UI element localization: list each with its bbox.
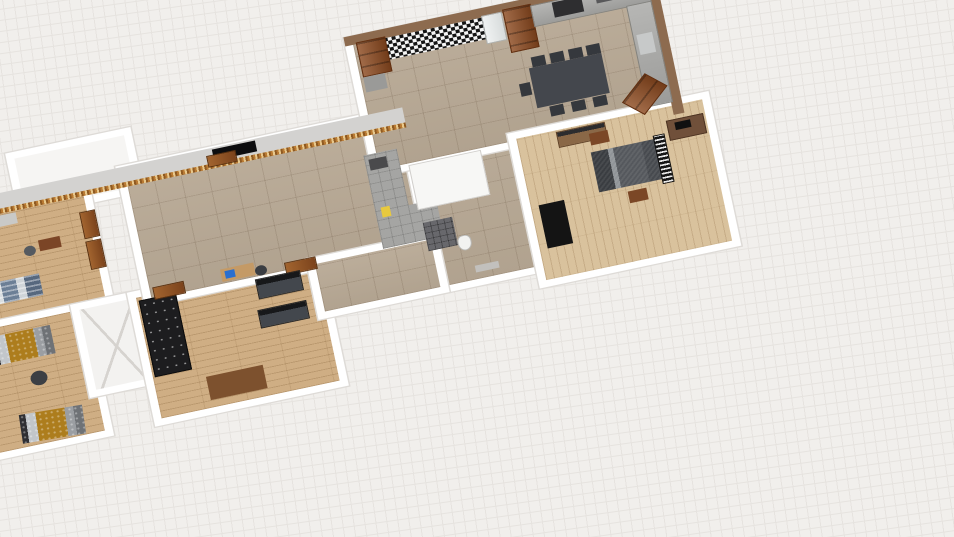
toiletries-yellow[interactable] — [381, 206, 392, 218]
dining-chair-8[interactable] — [519, 82, 532, 97]
shower[interactable] — [423, 217, 458, 252]
design-canvas[interactable] — [0, 0, 954, 537]
